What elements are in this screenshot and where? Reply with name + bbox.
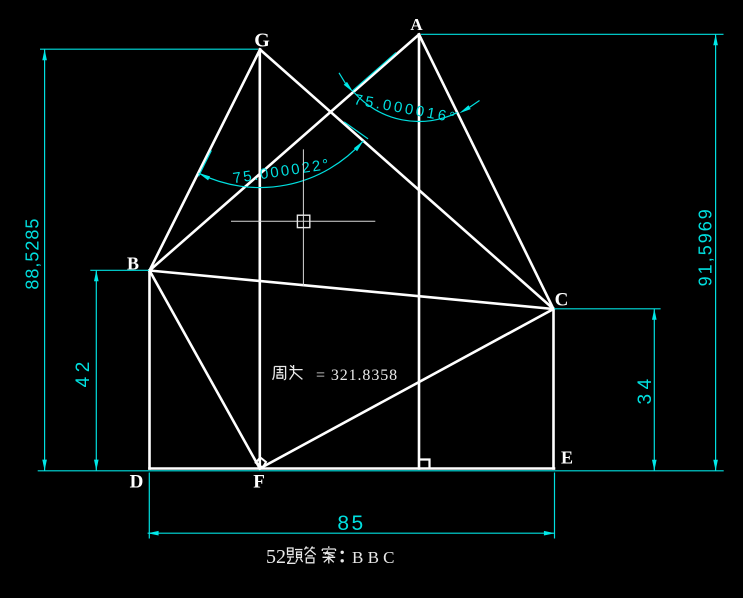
svg-text:A: A [410,15,423,34]
svg-text:91,5969: 91,5969 [696,207,716,286]
svg-text:F: F [253,472,265,493]
svg-text:G: G [254,30,270,52]
svg-text:C: C [555,290,569,311]
svg-text:34: 34 [635,374,656,404]
svg-text:B B C: B B C [352,548,395,567]
svg-text:= 321.8358: = 321.8358 [316,367,398,384]
svg-text:E: E [561,448,573,468]
svg-text:D: D [130,472,144,493]
svg-text:52: 52 [266,546,286,568]
svg-text:B: B [127,254,139,274]
svg-text:42: 42 [73,357,94,387]
svg-text:88,5285: 88,5285 [23,218,43,290]
svg-text:85: 85 [337,512,365,535]
